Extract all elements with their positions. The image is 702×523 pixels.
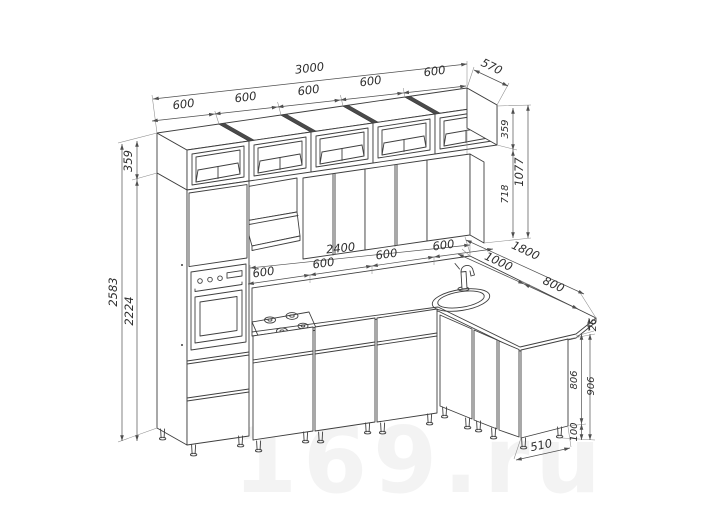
dim-label-359-right: 359 xyxy=(500,119,511,138)
tall-cabinet xyxy=(157,173,249,445)
dim-label-600-base: 600 xyxy=(375,246,399,263)
extractor-hood xyxy=(245,178,300,251)
dim-label-600-base: 600 xyxy=(432,237,456,254)
dim-label-718: 718 xyxy=(500,184,511,203)
dim-label-2583: 2583 xyxy=(106,277,120,306)
tall-cabinet-side xyxy=(157,173,187,445)
right-cabinet-door-2 xyxy=(499,341,519,437)
kitchen-technical-drawing: 169.ru xyxy=(0,0,702,523)
dim-label-600: 600 xyxy=(234,89,257,106)
dim-label-600: 600 xyxy=(359,73,382,90)
right-cabinet-door-1 xyxy=(474,330,497,429)
corner-wall-cabinet xyxy=(427,154,470,241)
dim-label-2400: 2400 xyxy=(325,240,356,257)
tall-cabinet-front xyxy=(187,181,249,445)
dim-label-800: 800 xyxy=(541,273,567,295)
dim-label-806: 806 xyxy=(569,370,580,389)
dim-left-heights: 359 2583 2224 xyxy=(106,133,157,442)
kitchen-drawing-page: 169.ru xyxy=(0,0,702,523)
dim-label-600: 600 xyxy=(172,96,195,113)
wall-cabinet-b xyxy=(365,160,427,250)
dim-label-600-base: 600 xyxy=(312,255,336,272)
dim-label-359-left: 359 xyxy=(121,150,135,172)
right-cabinet-side-panel xyxy=(521,339,568,438)
dim-label-600-base: 600 xyxy=(252,264,276,281)
dim-label-906: 906 xyxy=(586,376,597,395)
dim-label-600: 600 xyxy=(423,63,446,80)
dim-label-1077: 1077 xyxy=(512,157,526,187)
dim-label-2224: 2224 xyxy=(122,296,136,325)
dim-label-1800: 1800 xyxy=(509,238,541,263)
corner-unit-door xyxy=(440,315,472,419)
dim-label-26: 26 xyxy=(588,319,599,332)
dim-label-600: 600 xyxy=(297,82,320,99)
corner-wall-cabinet-side xyxy=(470,154,484,243)
dim-label-100: 100 xyxy=(569,422,580,441)
dim-label-3000: 3000 xyxy=(294,59,325,76)
